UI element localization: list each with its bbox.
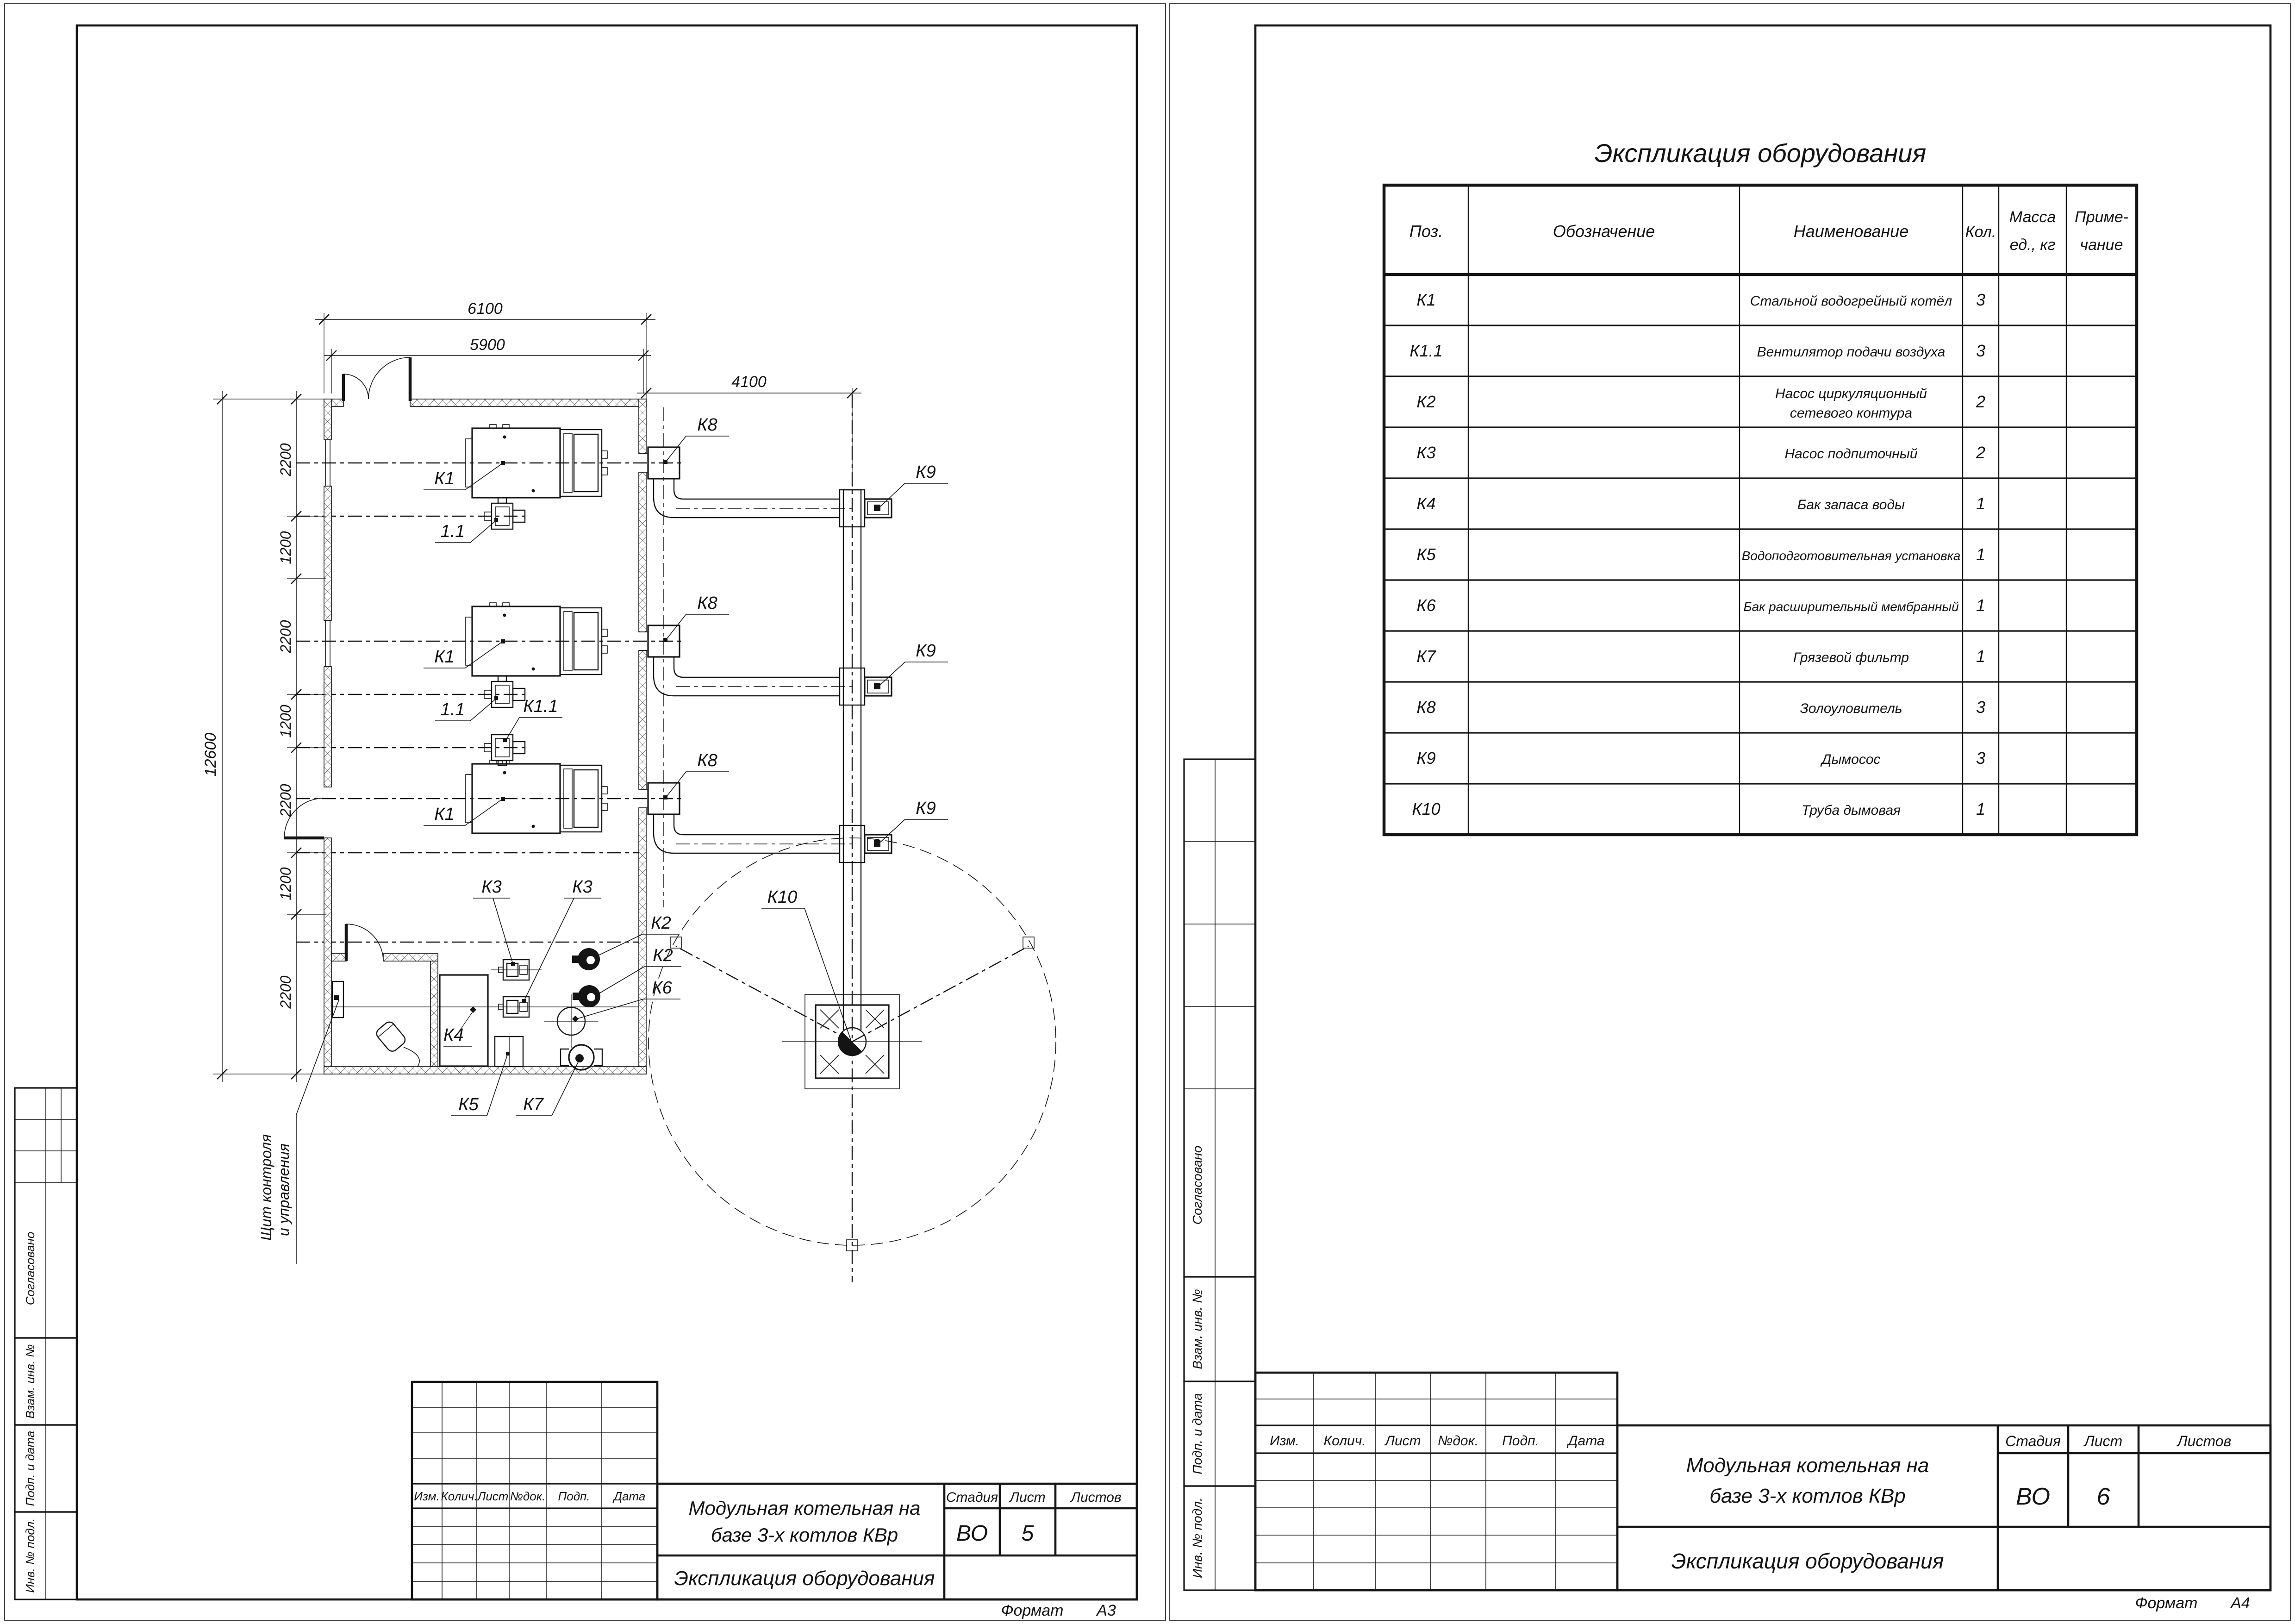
svg-text:К5: К5: [458, 1095, 479, 1114]
svg-text:К4: К4: [443, 1025, 464, 1045]
svg-text:К2: К2: [653, 946, 673, 965]
svg-text:базе 3-х котлов КВр: базе 3-х котлов КВр: [711, 1524, 898, 1546]
table-row: К8Золоуловитель3: [1416, 698, 1985, 717]
svg-text:К1: К1: [434, 469, 455, 488]
plan-axes: [296, 394, 852, 1282]
window-2: [324, 620, 331, 667]
svg-text:К7: К7: [1416, 647, 1436, 666]
svg-text:сетевого контура: сетевого контура: [1790, 406, 1912, 421]
svg-text:Подп. и дата: Подп. и дата: [23, 1431, 37, 1506]
svg-text:Труба дымовая: Труба дымовая: [1802, 803, 1901, 818]
table-row: К1Стальной водогрейный котёл3: [1416, 290, 1985, 309]
svg-text:Бак расширительный мембранный: Бак расширительный мембранный: [1743, 600, 1959, 614]
svg-text:К10: К10: [1412, 800, 1440, 818]
svg-text:К2: К2: [1416, 392, 1435, 411]
svg-text:№док.: №док.: [510, 1489, 546, 1503]
svg-text:5900: 5900: [470, 336, 505, 354]
label-k5: К5: [451, 1054, 508, 1116]
table-row: К9Дымосос3: [1416, 749, 1985, 768]
svg-text:базе 3-х котлов КВр: базе 3-х котлов КВр: [1709, 1485, 1905, 1507]
svg-text:Кол.: Кол.: [1965, 223, 1996, 241]
svg-text:А3: А3: [1096, 1602, 1116, 1619]
table-row: К4Бак запаса воды1: [1416, 494, 1985, 513]
table-rows: К1Стальной водогрейный котёл3 К1.1Вентил…: [1409, 290, 1985, 818]
svg-text:Приме-: Приме-: [2075, 208, 2128, 226]
svg-text:К8: К8: [1416, 698, 1435, 717]
svg-text:2200: 2200: [277, 784, 294, 817]
svg-text:Формат: Формат: [2135, 1594, 2197, 1612]
svg-text:Вентилятор подачи воздуха: Вентилятор подачи воздуха: [1757, 344, 1946, 360]
svg-text:Стадия: Стадия: [946, 1490, 998, 1505]
svg-text:Модульная котельная на: Модульная котельная на: [689, 1497, 921, 1519]
svg-text:К8: К8: [697, 751, 717, 770]
smoke-exhauster-2: [865, 677, 892, 696]
svg-text:Лист: Лист: [477, 1489, 509, 1503]
svg-text:Инв. № подл.: Инв. № подл.: [23, 1518, 37, 1593]
svg-text:1: 1: [1976, 545, 1985, 564]
table-row: К10Труба дымовая1: [1412, 800, 1985, 818]
svg-text:К6: К6: [1416, 596, 1436, 615]
svg-text:Лист: Лист: [1384, 1433, 1421, 1449]
label-k8-1: К8: [666, 415, 729, 462]
svg-text:К3: К3: [572, 877, 592, 897]
svg-text:Водоподготовительная установка: Водоподготовительная установка: [1742, 549, 1961, 563]
svg-text:12600: 12600: [202, 733, 219, 777]
label-k9-3: К9: [880, 799, 948, 842]
svg-text:1200: 1200: [277, 531, 294, 564]
svg-text:Изм.: Изм.: [1270, 1433, 1299, 1449]
svg-text:Согласовано: Согласовано: [1190, 1146, 1204, 1225]
svg-text:1200: 1200: [277, 867, 294, 900]
drawing-canvas: К1 К1 К1 1.1 1.1 К1.1 К8 К8 К8 К9 К9 К9 …: [0, 0, 2295, 1624]
label-k9-1: К9: [880, 462, 948, 506]
svg-text:Листов: Листов: [2177, 1433, 2232, 1449]
svg-text:К8: К8: [697, 593, 717, 613]
svg-text:К9: К9: [916, 641, 936, 661]
water-treatment-k5: [495, 1037, 523, 1067]
svg-text:К5: К5: [1416, 545, 1436, 564]
table-row: К1.1Вентилятор подачи воздуха3: [1409, 341, 1985, 360]
table-row: К7Грязевой фильтр1: [1416, 647, 1985, 666]
svg-text:Поз.: Поз.: [1409, 222, 1443, 241]
boiler-k1-3: [466, 760, 607, 833]
svg-text:Изм.: Изм.: [414, 1489, 439, 1503]
svg-text:2200: 2200: [277, 620, 294, 653]
svg-text:К9: К9: [1416, 749, 1435, 768]
svg-text:К2: К2: [651, 913, 671, 933]
svg-text:3: 3: [1976, 341, 1985, 360]
smoke-exhauster-1: [865, 499, 892, 518]
svg-text:Взам. инв. №: Взам. инв. №: [1190, 1289, 1204, 1369]
svg-text:Бак запаса воды: Бак запаса воды: [1797, 497, 1905, 512]
smoke-exhauster-3: [865, 835, 892, 853]
boiler-k1-1: [466, 425, 607, 498]
svg-text:К4: К4: [1416, 494, 1435, 513]
boiler-k1-2: [466, 603, 607, 676]
side-stamp-a4: Согласовано Взам. инв. № Подп. и дата Ин…: [1184, 759, 1255, 1590]
svg-text:К3: К3: [481, 877, 502, 897]
pump-k3-1: [491, 960, 542, 980]
svg-text:и управления: и управления: [275, 1143, 292, 1236]
svg-text:Колич.: Колич.: [1323, 1433, 1366, 1449]
svg-text:К1: К1: [434, 647, 455, 667]
svg-text:К3: К3: [1416, 443, 1435, 462]
svg-text:Подп. и дата: Подп. и дата: [1190, 1393, 1204, 1474]
svg-text:Колич.: Колич.: [441, 1489, 477, 1503]
svg-text:Подп.: Подп.: [1502, 1433, 1539, 1449]
svg-text:Стальной водогрейный котёл: Стальной водогрейный котёл: [1750, 294, 1952, 309]
svg-text:1.1: 1.1: [441, 522, 465, 541]
svg-text:Лист: Лист: [1009, 1490, 1045, 1505]
sink: [374, 1020, 419, 1067]
svg-text:Насос циркуляционный: Насос циркуляционный: [1775, 386, 1927, 401]
svg-text:Масса: Масса: [2009, 208, 2056, 226]
floor-plan: [284, 357, 1056, 1282]
ash-catcher-duct-2: [639, 625, 852, 696]
svg-text:ВО: ВО: [956, 1521, 988, 1546]
svg-text:1200: 1200: [277, 705, 294, 737]
title-block-a4: Изм. Колич. Лист №док. Подп. Дата Модуль…: [1255, 1373, 2270, 1612]
table-row: К2Насос циркуляционныйсетевого контура2: [1416, 386, 1985, 421]
svg-text:ВО: ВО: [2016, 1483, 2050, 1510]
svg-text:2: 2: [1976, 443, 1985, 462]
table-header: Поз. Обозначение Наименование Кол. Масса…: [1409, 208, 2128, 254]
svg-text:К9: К9: [916, 462, 936, 482]
filter-k7: [561, 1045, 602, 1070]
label-k1-2: К1: [424, 642, 502, 668]
svg-text:Лист: Лист: [2083, 1433, 2122, 1449]
label-k3-2: К3: [524, 877, 601, 1001]
svg-text:ед., кг: ед., кг: [2010, 236, 2055, 254]
label-k8-3: К8: [666, 751, 729, 798]
svg-text:3: 3: [1976, 749, 1985, 768]
drawing-svg: К1 К1 К1 1.1 1.1 К1.1 К8 К8 К8 К9 К9 К9 …: [0, 0, 2295, 1624]
svg-text:Согласовано: Согласовано: [23, 1232, 37, 1305]
svg-text:Дата: Дата: [612, 1489, 646, 1503]
svg-text:3: 3: [1976, 290, 1985, 309]
sheet-a3-edge: [5, 4, 1166, 1620]
svg-text:4100: 4100: [731, 373, 767, 391]
tank-k4: [440, 975, 488, 1066]
svg-text:Взам. инв. №: Взам. инв. №: [23, 1344, 37, 1419]
svg-text:К10: К10: [767, 887, 798, 907]
svg-text:2200: 2200: [277, 975, 294, 1009]
fan-3: [484, 735, 525, 765]
sheet-a3: К1 К1 К1 1.1 1.1 К1.1 К8 К8 К8 К9 К9 К9 …: [5, 4, 1166, 1620]
side-stamp-a3: Согласовано Взам. инв. № Подп. и дата Ин…: [15, 1088, 77, 1599]
table-title: Экспликация оборудования: [1595, 138, 1927, 168]
svg-text:К1: К1: [434, 805, 455, 824]
svg-text:А4: А4: [2230, 1594, 2250, 1612]
table-row: К5Водоподготовительная установка1: [1416, 545, 1985, 564]
svg-text:6100: 6100: [468, 300, 503, 318]
svg-text:Золоуловитель: Золоуловитель: [1800, 701, 1902, 716]
svg-text:Формат: Формат: [1001, 1602, 1063, 1619]
entrance-door-top: [343, 357, 410, 401]
svg-text:Инв. № подл.: Инв. № подл.: [1190, 1498, 1204, 1578]
plan-labels: К1 К1 К1 1.1 1.1 К1.1 К8 К8 К8 К9 К9 К9 …: [258, 415, 948, 1264]
svg-text:3: 3: [1976, 698, 1985, 717]
svg-text:№док.: №док.: [1438, 1433, 1478, 1449]
svg-text:Экспликация оборудования: Экспликация оборудования: [674, 1567, 935, 1590]
plan-walls: [324, 399, 646, 1074]
svg-text:2: 2: [1976, 392, 1985, 411]
label-fan-2: 1.1: [435, 699, 496, 721]
svg-text:Экспликация оборудования: Экспликация оборудования: [1671, 1549, 1944, 1573]
ash-catcher-duct-3: [639, 783, 852, 853]
svg-text:К7: К7: [523, 1095, 544, 1114]
svg-text:Дата: Дата: [1566, 1433, 1604, 1449]
svg-text:1: 1: [1976, 596, 1985, 615]
svg-text:Насос подпиточный: Насос подпиточный: [1784, 446, 1917, 462]
svg-text:Листов: Листов: [1070, 1490, 1121, 1505]
table-row: К6Бак расширительный мембранный1: [1416, 596, 1985, 615]
plan-dimensions: 6100 5900 4100 12600 2200 1200 2200 1200…: [202, 300, 861, 1082]
sheet-a3-frame: [77, 25, 1137, 1599]
label-k9-2: К9: [880, 641, 948, 685]
svg-text:К8: К8: [697, 415, 717, 435]
label-k1-3: К1: [424, 800, 502, 825]
svg-text:Дымосос: Дымосос: [1820, 752, 1880, 767]
title-block-a3: Изм. Колич. Лист №док. Подп. Дата Модуль…: [412, 1382, 1137, 1619]
svg-text:Наименование: Наименование: [1794, 222, 1908, 241]
svg-text:Подп.: Подп.: [558, 1489, 590, 1503]
label-k1_1: К1.1: [505, 697, 562, 741]
svg-text:5: 5: [1022, 1521, 1034, 1546]
svg-text:6: 6: [2097, 1483, 2110, 1510]
sheet-a4-frame: [1255, 25, 2270, 1590]
table-row: К3Насос подпиточный2: [1416, 443, 1985, 462]
label-k1-1: К1: [424, 464, 502, 490]
fan-2: [484, 676, 525, 707]
svg-text:1: 1: [1976, 800, 1985, 818]
svg-text:Обозначение: Обозначение: [1553, 222, 1655, 241]
svg-text:К6: К6: [652, 978, 672, 998]
label-k8-2: К8: [666, 593, 729, 640]
svg-text:К1.1: К1.1: [523, 697, 558, 716]
svg-text:Грязевой фильтр: Грязевой фильтр: [1793, 650, 1909, 665]
equipment-table: Экспликация оборудования Поз. Обозначени…: [1384, 138, 2137, 835]
svg-text:1.1: 1.1: [441, 700, 465, 719]
svg-text:чание: чание: [2080, 236, 2123, 254]
svg-text:Щит контроля: Щит контроля: [258, 1134, 274, 1241]
svg-text:1: 1: [1976, 494, 1985, 513]
fan-1: [484, 498, 525, 529]
svg-text:2200: 2200: [277, 443, 294, 476]
svg-text:1: 1: [1976, 647, 1985, 666]
label-k3-1: К3: [473, 877, 513, 964]
sheet-a4: Экспликация оборудования Поз. Обозначени…: [1169, 4, 2290, 1620]
svg-text:Стадия: Стадия: [2005, 1433, 2061, 1449]
label-fan-1: 1.1: [435, 520, 496, 543]
ash-catcher-duct-1: [639, 447, 852, 518]
svg-text:К9: К9: [916, 799, 936, 818]
label-k4: К4: [443, 1025, 472, 1046]
svg-text:К1: К1: [1416, 290, 1435, 309]
pump-k2-1: [572, 948, 600, 970]
svg-text:Модульная котельная на: Модульная котельная на: [1686, 1454, 1929, 1477]
pump-k2-2: [573, 985, 600, 1007]
svg-text:К1.1: К1.1: [1409, 341, 1442, 360]
